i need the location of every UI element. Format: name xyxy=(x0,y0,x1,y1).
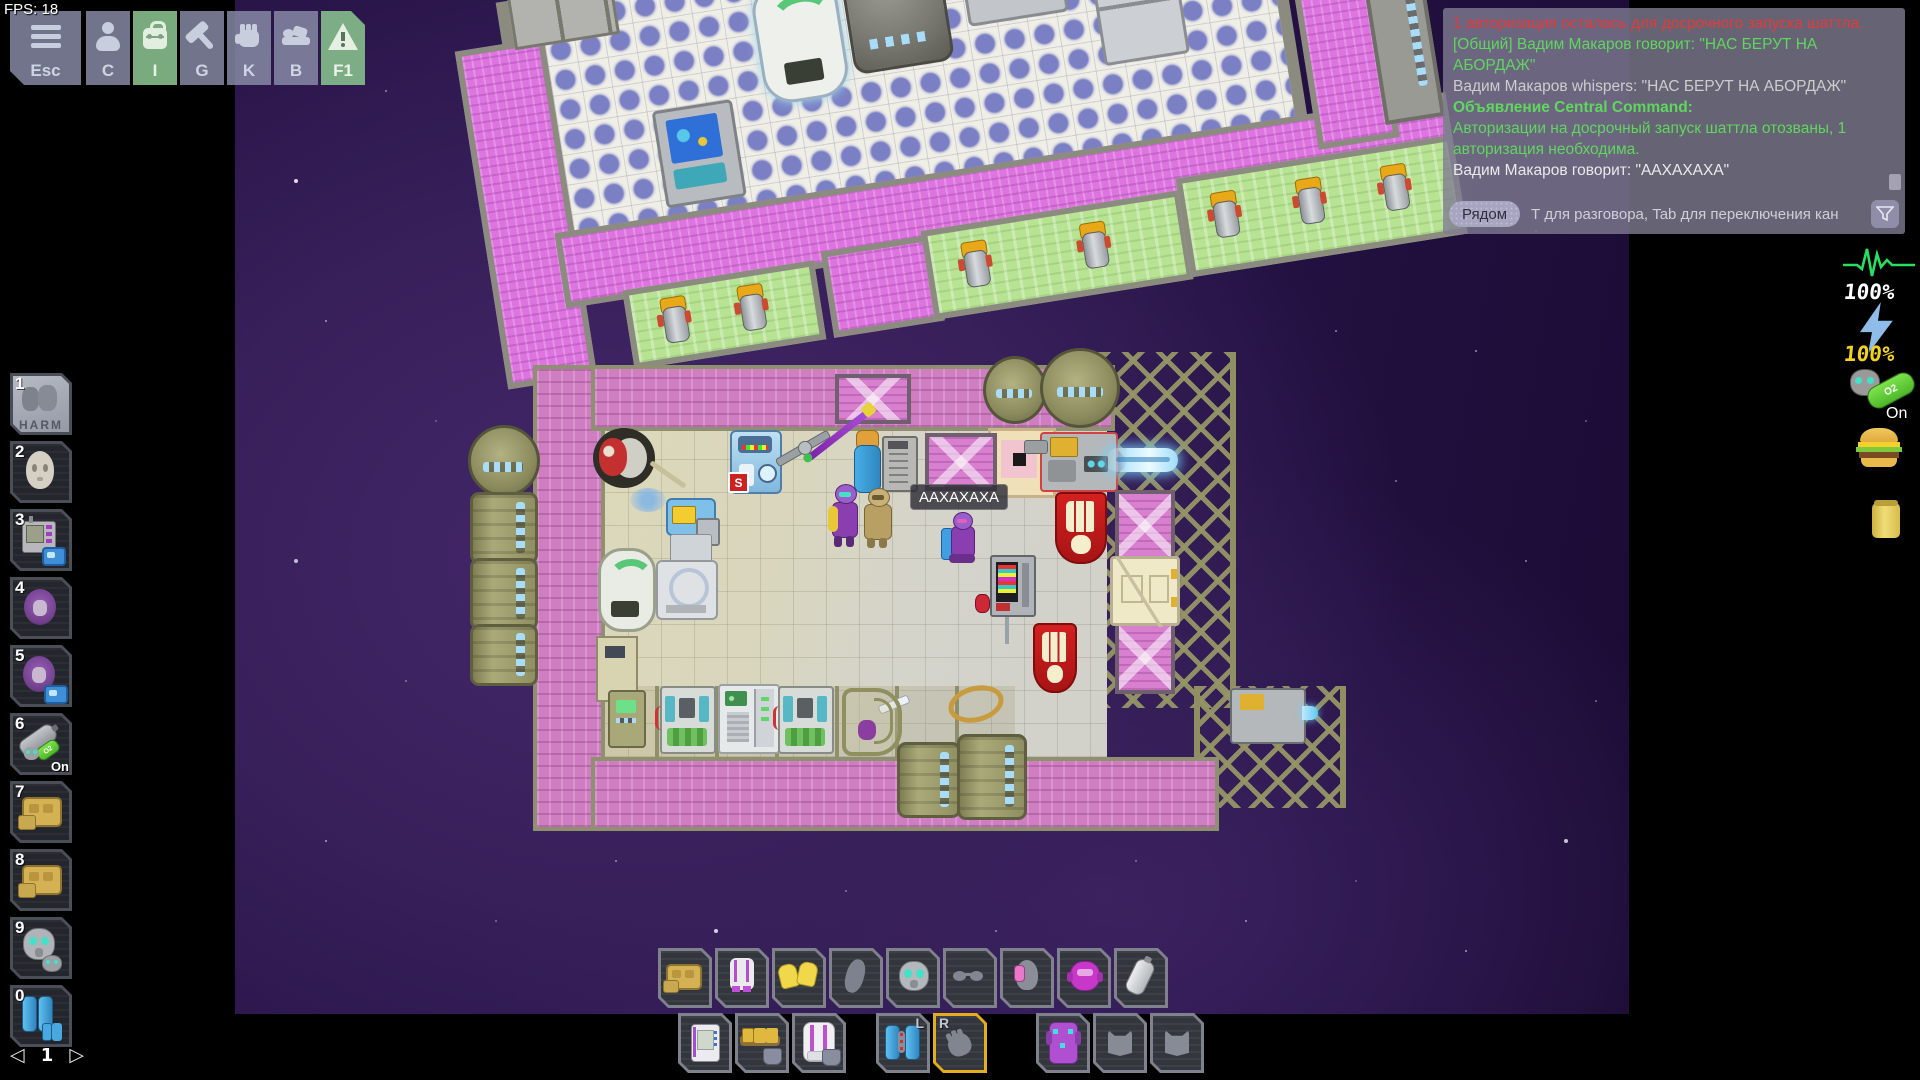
generator-1[interactable] xyxy=(660,686,716,754)
hotbar-page-number: 1 xyxy=(41,1045,54,1066)
pda-white-icon xyxy=(691,1024,720,1062)
vending-machine[interactable] xyxy=(990,555,1036,617)
tanks-mini-icon xyxy=(42,1023,52,1041)
hand-row-slot-belt[interactable] xyxy=(735,1013,789,1073)
left-hand-label: L xyxy=(915,1015,924,1031)
barrel-topright-2[interactable] xyxy=(1040,348,1120,428)
internals-on-label: On xyxy=(1886,405,1907,423)
equip-slot-jumpsuit[interactable] xyxy=(715,948,769,1008)
thirst-can-icon xyxy=(1872,500,1900,538)
thruster-machine-low[interactable] xyxy=(1230,688,1306,744)
barrel-topright-1[interactable] xyxy=(983,356,1047,424)
right-hand-label: R xyxy=(939,1015,949,1031)
menu-button-ahelp[interactable]: F1 xyxy=(321,11,365,85)
hotbar-slot-6-oxygen[interactable]: 6 O2 On xyxy=(10,713,72,775)
hand-row-slot-pocket-1[interactable] xyxy=(1093,1013,1147,1073)
body-scanner[interactable] xyxy=(656,560,718,620)
power-percent: 100% xyxy=(1843,342,1896,366)
hotbar-slot-4-void-mask[interactable]: 4 xyxy=(10,577,72,639)
engine-beam xyxy=(1106,448,1178,472)
window-pink-right-1 xyxy=(1115,490,1175,562)
hotbar-page-next[interactable]: ▷ xyxy=(69,1044,84,1066)
character-tan-hardsuit[interactable] xyxy=(860,488,894,548)
barrel-bottom-1[interactable] xyxy=(897,742,961,818)
hand-row-slot-pda[interactable] xyxy=(678,1013,732,1073)
on-badge: On xyxy=(51,759,69,774)
chat-message: [Общий] Вадим Макаров говорит: "НАС БЕРУ… xyxy=(1453,34,1885,76)
chat-log: 1 авторизация осталась для досрочного за… xyxy=(1453,13,1885,181)
hotbar-page-prev[interactable]: ◁ xyxy=(10,1044,25,1066)
revolution-banner-1[interactable] xyxy=(1055,492,1107,564)
hotbar-slot-9-gas-mask[interactable]: 9 xyxy=(10,917,72,979)
menu-button-label: Esc xyxy=(10,61,81,81)
revolution-banner-2[interactable] xyxy=(1033,623,1077,693)
harm-intent-icon xyxy=(22,387,39,411)
ghost-face-icon xyxy=(26,451,54,489)
funnel-icon xyxy=(1876,206,1894,222)
hunger-burger-icon xyxy=(1856,428,1902,468)
fps-counter: FPS: 18 xyxy=(4,1,58,18)
tan-armor-icon xyxy=(18,883,36,898)
slot-number: 3 xyxy=(15,510,24,530)
chat-message: Вадим Макаров whispers: "НАС БЕРУТ НА АБ… xyxy=(1453,76,1885,97)
slot-number: 1 xyxy=(15,374,24,394)
jetpack-strap-icon xyxy=(898,1031,905,1053)
slot-number: 8 xyxy=(15,850,24,870)
belt-pouch-icon xyxy=(742,1028,754,1043)
equip-slot-mask[interactable] xyxy=(886,948,940,1008)
game-viewport[interactable]: S xyxy=(235,0,1629,1014)
cryo-pod-main[interactable] xyxy=(598,548,656,632)
chat-input-row: Рядом xyxy=(1449,200,1899,228)
actions-hand-icon xyxy=(232,20,266,54)
hotbar-slot-2-ghost-face[interactable]: 2 xyxy=(10,441,72,503)
sandbox-bed-icon xyxy=(279,20,313,54)
tan-armor-icon xyxy=(18,815,36,830)
exosuit-purple-icon xyxy=(1049,1022,1078,1064)
chat-message: Объявление Central Command: xyxy=(1453,97,1885,118)
meat-table[interactable] xyxy=(593,428,655,488)
harm-intent-icon xyxy=(38,385,57,411)
canister-stack-blue[interactable] xyxy=(853,430,881,492)
pouch-mini-icon xyxy=(763,1048,782,1065)
menu-button-label: B xyxy=(274,61,318,81)
equip-slot-neck-empty[interactable] xyxy=(829,948,883,1008)
equip-slot-gloves[interactable] xyxy=(772,948,826,1008)
menu-button-label: C xyxy=(86,61,130,81)
fridge-machine[interactable] xyxy=(718,684,780,754)
equip-slot-head-mask[interactable] xyxy=(1057,948,1111,1008)
radio-mini-icon xyxy=(44,685,68,704)
harm-label: HARM xyxy=(10,418,72,432)
health-percent: 100% xyxy=(1843,280,1896,304)
menu-icon xyxy=(29,20,63,54)
chat-filter-button[interactable] xyxy=(1871,200,1899,228)
window-pink-right-2 xyxy=(1115,622,1175,694)
menu-button-esc[interactable]: Esc xyxy=(10,11,81,85)
tan-armor-icon xyxy=(663,980,679,993)
character-sitting-purple[interactable] xyxy=(941,512,979,566)
menu-button-sandbox[interactable]: B xyxy=(274,11,318,85)
equip-slot-ears[interactable] xyxy=(1000,948,1054,1008)
menu-button-crafting[interactable]: G xyxy=(180,11,224,85)
gas-mask-icon xyxy=(899,961,929,991)
hotbar-slot-1-harm-intent[interactable]: 1 HARM xyxy=(10,373,72,435)
barrel-left-2[interactable] xyxy=(470,558,538,630)
airlock-shuttle[interactable] xyxy=(1110,556,1180,626)
slot-number: 7 xyxy=(15,782,24,802)
barrel-left-3[interactable] xyxy=(470,624,538,686)
character-icon xyxy=(91,20,125,54)
ahelp-warning-icon xyxy=(326,20,360,54)
mop-splat[interactable] xyxy=(630,488,666,512)
equip-slot-glasses-empty[interactable] xyxy=(943,948,997,1008)
speech-bubble: ААХАХАХА xyxy=(910,484,1008,510)
void-mask-icon xyxy=(24,589,56,625)
s-sign[interactable]: S xyxy=(728,472,749,493)
barrel-left-1[interactable] xyxy=(470,492,538,564)
slot-number: 0 xyxy=(15,986,24,1006)
ecg-health-icon xyxy=(1843,243,1915,283)
menu-button-label: I xyxy=(133,61,177,81)
menu-button-label: G xyxy=(180,61,224,81)
barrel-bottom-2[interactable] xyxy=(957,734,1027,820)
chat-message: 1 авторизация осталась для досрочного за… xyxy=(1453,13,1885,34)
slot-number: 6 xyxy=(15,714,24,734)
hotbar-page-nav: ◁ 1 ▷ xyxy=(10,1044,84,1066)
chat-panel[interactable]: 1 авторизация осталась для досрочного за… xyxy=(1443,8,1905,234)
gas-mask-mini-icon xyxy=(24,747,39,760)
menu-button-actions[interactable]: K xyxy=(227,11,271,85)
slot-number: 2 xyxy=(15,442,24,462)
slot-number: 5 xyxy=(15,646,24,666)
red-item[interactable] xyxy=(975,594,990,613)
hand-row-slot-exosuit[interactable] xyxy=(1036,1013,1090,1073)
hand-slot-left[interactable]: L xyxy=(876,1013,930,1073)
character-purple-hardsuit[interactable] xyxy=(828,484,860,548)
barrel-round-left[interactable] xyxy=(468,425,540,497)
menu-button-inventory[interactable]: I xyxy=(133,11,177,85)
chat-input[interactable] xyxy=(1529,205,1871,224)
analyzer-blue[interactable] xyxy=(666,498,714,562)
equip-slot-tank[interactable] xyxy=(1114,948,1168,1008)
generator-2[interactable] xyxy=(778,686,834,754)
earpiece-pink-icon xyxy=(1014,965,1025,982)
gas-mask-mini-icon xyxy=(42,955,62,972)
chat-message: Вадим Макаров говорит: "ААХАХАХА" xyxy=(1453,160,1885,181)
glasses-silhouette-icon xyxy=(953,971,987,983)
chat-scrollbar[interactable] xyxy=(1889,174,1901,190)
pod-frame[interactable] xyxy=(842,688,902,756)
pouch-mini-icon xyxy=(822,1049,841,1066)
hotbar-slot-3-pda[interactable]: 3 xyxy=(10,509,72,571)
hotbar-slot-8-armor[interactable]: 8 xyxy=(10,849,72,911)
menu-button-label: F1 xyxy=(321,61,365,81)
slot-number: 4 xyxy=(15,578,24,598)
hand-row-slot-backpack[interactable] xyxy=(792,1013,846,1073)
hand-row-slot-pocket-2[interactable] xyxy=(1150,1013,1204,1073)
window-pink-small xyxy=(925,433,997,491)
equip-slot-armor[interactable] xyxy=(658,948,712,1008)
inventory-backpack-icon xyxy=(138,20,172,54)
internals-indicator[interactable]: O2 On xyxy=(1848,365,1920,427)
jumpsuit-icon xyxy=(730,958,754,990)
chat-channel-button[interactable]: Рядом xyxy=(1449,201,1520,227)
hand-slot-right-active[interactable]: R xyxy=(933,1013,987,1073)
hotbar-slot-0-blue-tanks[interactable]: 0 xyxy=(10,985,72,1047)
wall-window-top xyxy=(835,374,911,424)
hotbar-slot-7-armor[interactable]: 7 xyxy=(10,781,72,843)
slot-number: 9 xyxy=(15,918,24,938)
menu-button-label: K xyxy=(227,61,271,81)
console-small[interactable] xyxy=(608,690,646,748)
radio-mini-icon xyxy=(42,547,66,566)
chat-message: Авторизации на досрочный запуск шаттла о… xyxy=(1453,118,1885,160)
mask-magenta-icon xyxy=(1070,961,1100,991)
crafting-hammer-icon xyxy=(178,13,226,61)
hotbar-slot-5-void-mask-radio[interactable]: 5 xyxy=(10,645,72,707)
menu-button-character[interactable]: C xyxy=(86,11,130,85)
